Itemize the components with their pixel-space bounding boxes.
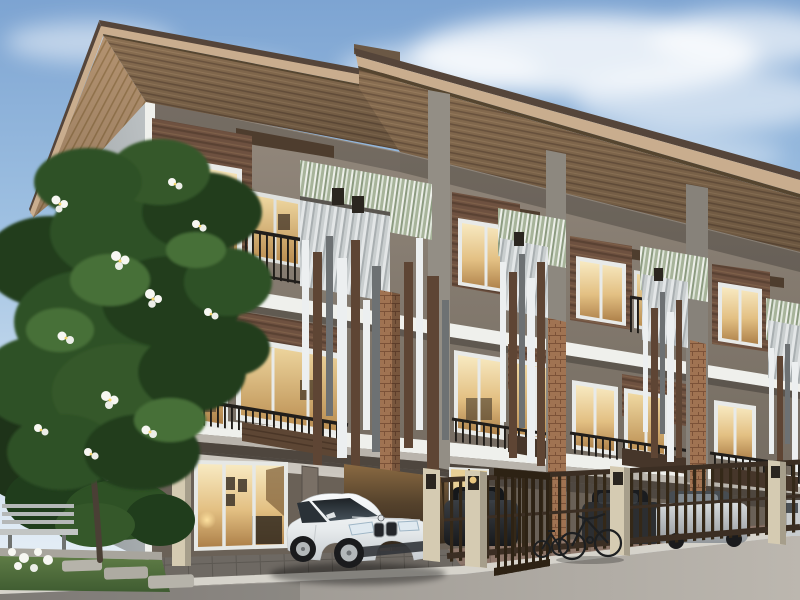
slat-fin [676,300,682,458]
interior-art [226,477,235,490]
car-roundel-badge [378,515,384,521]
slat-fin [643,300,648,432]
rendered-photo [0,0,800,600]
townhome-scene [0,0,800,600]
slat-fin [527,278,535,462]
shrub [125,494,195,546]
slat-screen-cluster-4 [766,298,800,472]
pier-shade [480,471,487,568]
slat-fin [667,312,674,462]
slat-fin [660,292,665,434]
slat-fin [519,254,525,428]
slat-fin [651,308,658,458]
wall-lamp [654,268,663,281]
bench-back-rail [2,520,74,524]
bench-leg [62,535,66,551]
pier-shade [780,461,786,545]
foliage [26,308,94,352]
bench-back-rail [2,512,74,516]
slat-fin [404,262,413,448]
foliage [194,320,270,376]
stone [62,559,102,571]
foliage [34,148,142,216]
slat-fin [416,238,423,430]
flower [43,555,53,565]
slat-fin [313,252,322,467]
flower [34,548,42,556]
pier-shade [624,467,630,556]
window-3f [576,256,626,326]
slat-fin [785,344,790,444]
interior-art [226,494,235,506]
car-wheel-rear [290,536,316,562]
slat-fin [427,276,439,470]
slat-fin [500,262,506,422]
stone [148,574,194,589]
lamp-glow [470,477,477,484]
slat-fin [537,262,545,466]
slat-fin [363,300,370,430]
slat-fin [372,266,381,452]
car-shadow [270,563,446,585]
gate-pier [768,460,786,545]
car-wheel-front [334,538,364,568]
flower [30,564,38,572]
gate-pier [465,470,487,568]
slat-fin [337,258,347,458]
gate-open-leaf [494,468,550,576]
bench-back-rail [2,504,74,508]
wall-lamp [426,474,436,489]
slat-fin [777,356,783,472]
gate-leaf-bars [494,468,550,576]
flower [8,548,16,556]
bench-seat [0,529,78,535]
foliage [134,398,206,442]
car-hub [347,551,352,556]
stone [104,566,148,580]
slat-fin [792,362,798,472]
flower [14,562,22,570]
car-kidney-grille [374,523,384,537]
interior-console-table [252,516,282,544]
interior-art [238,479,247,492]
foliage [70,254,150,306]
slat-fin [509,272,517,458]
interior-art [278,214,290,230]
wall-lamp [352,196,364,213]
car-hub [301,547,305,551]
slat-fin [351,240,360,468]
wall-lamp [332,188,344,205]
slat-fin [302,240,309,390]
wall-lamp [771,466,780,478]
window-3f [718,282,762,348]
slat-fin [769,348,774,454]
slat-fin [326,236,333,416]
car-kidney-grille [386,522,397,536]
interior-lamp-glow [198,511,216,529]
wall-lamp [514,232,524,246]
flower [19,553,29,563]
wall-lamp [613,472,623,485]
foliage [166,232,226,268]
car-headlight [398,521,419,531]
slat-fin [442,300,449,440]
glass-sliding-doors [194,460,288,551]
